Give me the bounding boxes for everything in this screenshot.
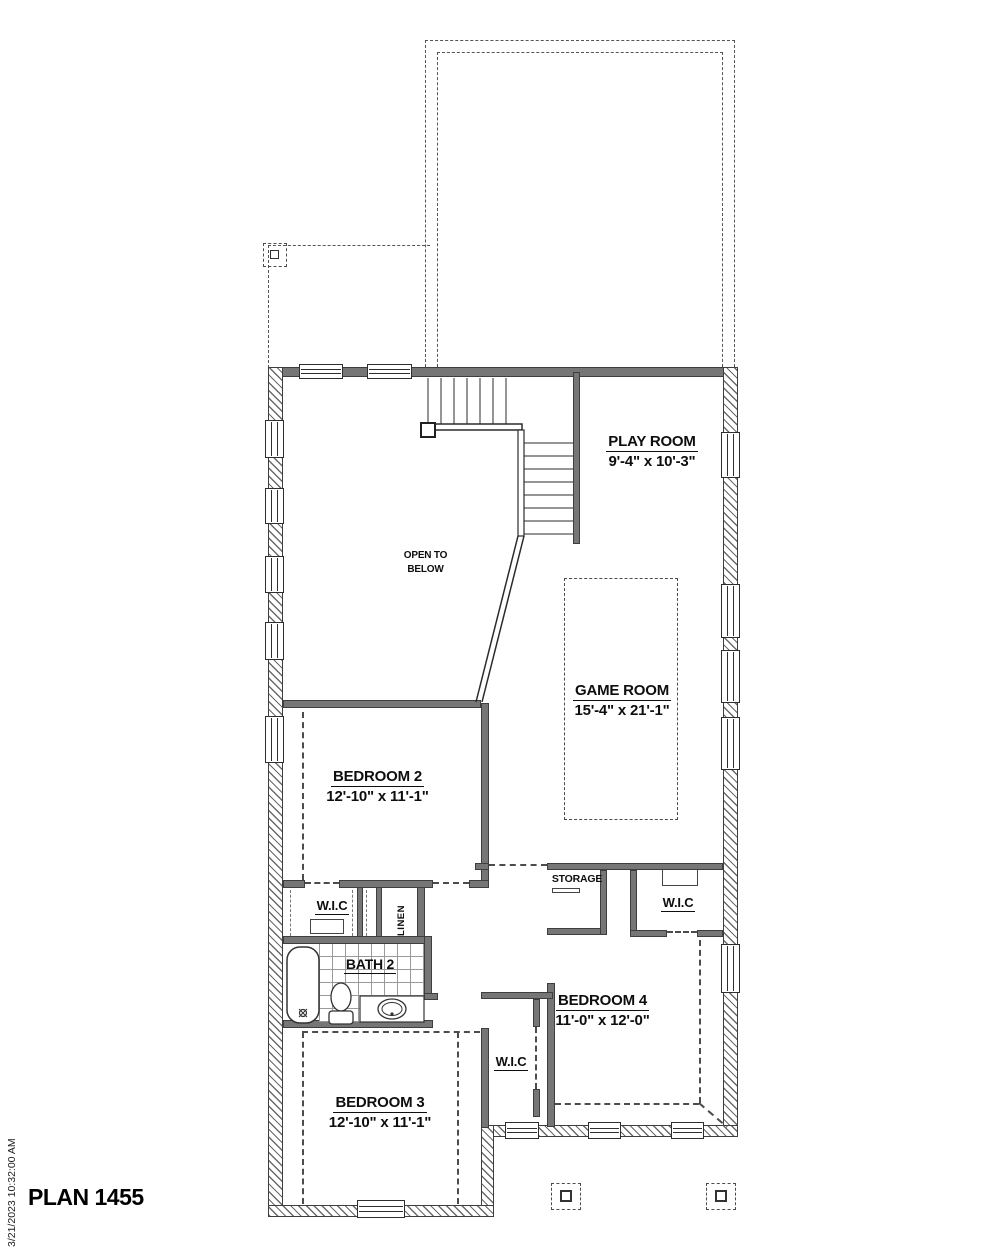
game-room-dims: 15'-4" x 21'-1" [557,701,687,721]
closet-label-wic-bedroom-4: W.I.C [648,895,708,912]
toilet-tank-icon [329,1011,353,1024]
bedroom-4-dims: 11'-0" x 12'-0" [520,1011,685,1031]
closet-label-storage: STORAGE [550,873,604,885]
open-to-below-line2: BELOW [383,563,468,577]
stair-treads-upper [428,378,506,426]
play-room-name: PLAY ROOM [606,433,697,452]
wic-bedroom-2-name: W.I.C [315,898,350,915]
closet-label-linen: LINEN [396,894,407,936]
closet-label-wic-hall: W.I.C [482,1054,540,1071]
newel-post [421,423,435,437]
stair-shaft-rail [518,430,524,536]
bedroom-3-dims: 12'-10" x 11'-1" [295,1113,465,1133]
room-label-bedroom-3: BEDROOM 3 12'-10" x 11'-1" [295,1094,465,1133]
tub-icon [287,947,319,1023]
bedroom-4-name: BEDROOM 4 [556,992,649,1011]
sink-faucet-icon [390,1012,393,1015]
game-room-name: GAME ROOM [573,682,671,701]
bedroom-3-name: BEDROOM 3 [333,1094,426,1113]
angled-railing [482,536,524,702]
angled-railing [476,536,518,702]
print-timestamp: 3/21/2023 10:32:00 AM [6,1112,18,1247]
room-label-play-room: PLAY ROOM 9'-4" x 10'-3" [587,433,717,472]
plan-title: PLAN 1455 [28,1184,144,1211]
stair-railing [428,424,522,430]
room-label-open-to-below: OPEN TO BELOW [383,549,468,576]
bedroom-2-name: BEDROOM 2 [331,768,424,787]
wic-bedroom-4-name: W.I.C [661,895,696,912]
bedroom-2-dims: 12'-10" x 11'-1" [295,787,460,807]
closet-label-wic-bedroom-2: W.I.C [302,898,362,915]
open-to-below-line1: OPEN TO [383,549,468,563]
bedroom4-extent-diagonal [699,1103,727,1127]
room-label-bedroom-2: BEDROOM 2 12'-10" x 11'-1" [295,768,460,807]
room-label-game-room: GAME ROOM 15'-4" x 21'-1" [557,682,687,721]
storage-name: STORAGE [552,873,602,885]
room-label-bedroom-4: BEDROOM 4 11'-0" x 12'-0" [520,992,685,1031]
floor-plan: PLAY ROOM 9'-4" x 10'-3" GAME ROOM 15'-4… [0,0,1000,1250]
stair-treads-lower [524,443,573,534]
wic-hall-name: W.I.C [494,1054,529,1071]
bath-2-name: BATH 2 [344,956,396,974]
room-label-bath-2: BATH 2 [330,956,410,974]
toilet-icon [331,983,351,1011]
play-room-dims: 9'-4" x 10'-3" [587,452,717,472]
